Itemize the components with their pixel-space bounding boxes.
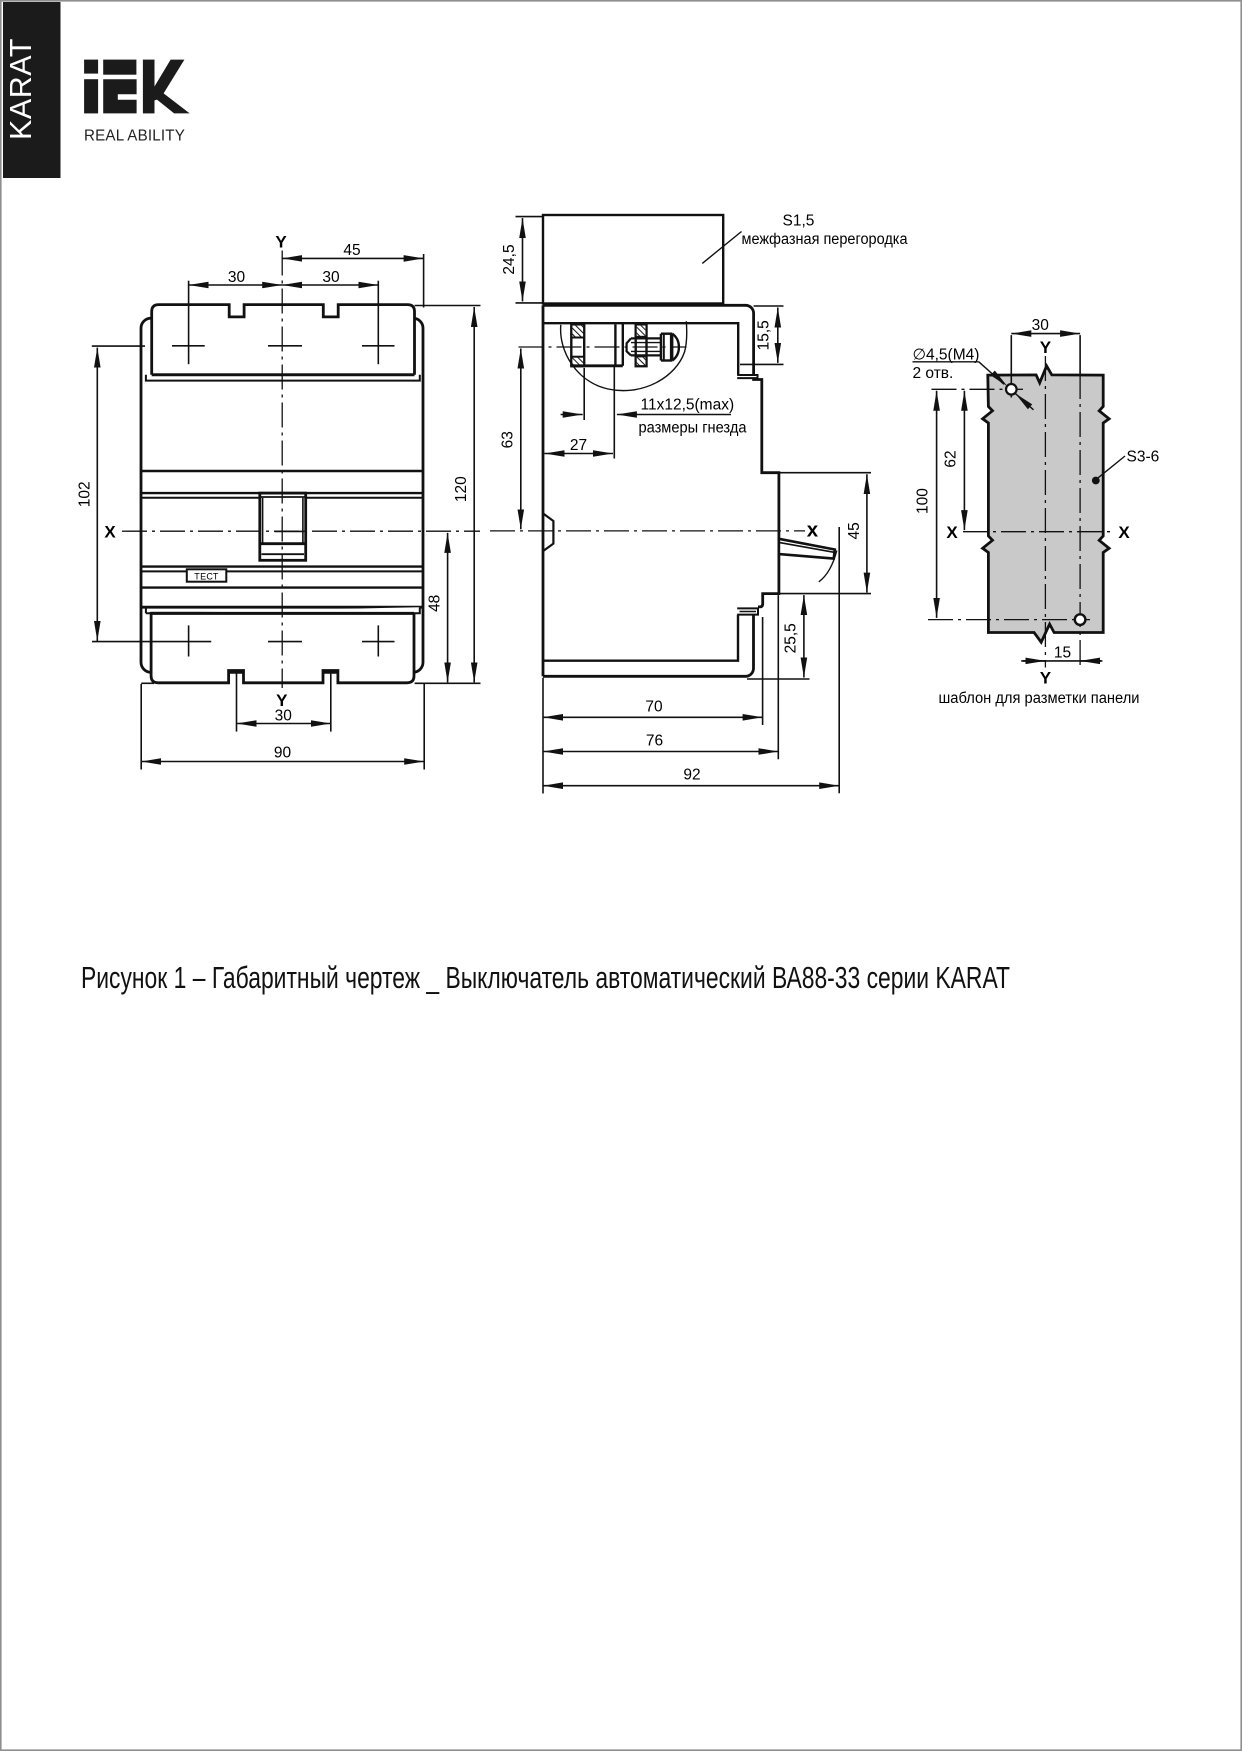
svg-text:48: 48 [426, 595, 443, 612]
svg-text:92: 92 [683, 767, 700, 784]
svg-text:X: X [104, 523, 116, 542]
svg-text:Y: Y [1040, 669, 1052, 688]
svg-text:30: 30 [275, 707, 293, 724]
svg-text:X: X [946, 523, 958, 542]
svg-text:90: 90 [274, 745, 292, 762]
svg-text:25,5: 25,5 [782, 623, 799, 653]
svg-text:Y: Y [1040, 338, 1052, 357]
svg-text:15: 15 [1054, 645, 1071, 662]
svg-text:S1,5: S1,5 [783, 213, 815, 230]
svg-text:102: 102 [77, 481, 94, 507]
svg-text:15,5: 15,5 [755, 320, 772, 350]
svg-text:межфазная перегородка: межфазная перегородка [742, 231, 908, 248]
svg-text:ТЕСТ: ТЕСТ [194, 571, 219, 581]
svg-text:63: 63 [499, 431, 516, 448]
svg-text:шаблон для разметки панели: шаблон для разметки панели [939, 690, 1140, 707]
svg-text:∅4,5(M4): ∅4,5(M4) [913, 347, 980, 364]
svg-text:120: 120 [453, 476, 470, 502]
svg-text:30: 30 [1032, 317, 1050, 334]
svg-text:KARAT: KARAT [4, 38, 38, 140]
svg-text:X: X [1118, 523, 1130, 542]
svg-text:размеры гнезда: размеры гнезда [639, 420, 747, 437]
svg-text:45: 45 [846, 522, 863, 539]
svg-text:45: 45 [343, 242, 360, 259]
svg-text:30: 30 [228, 269, 246, 286]
svg-text:24,5: 24,5 [501, 244, 518, 274]
svg-text:30: 30 [322, 269, 340, 286]
svg-text:11х12,5(max): 11х12,5(max) [641, 397, 735, 414]
svg-text:REAL ABILITY: REAL ABILITY [84, 128, 185, 145]
svg-text:70: 70 [645, 698, 663, 715]
svg-text:Рисунок 1 – Габаритный чертеж: Рисунок 1 – Габаритный чертеж _ Выключат… [81, 961, 1010, 995]
svg-text:x: x [807, 519, 819, 542]
svg-text:62: 62 [943, 450, 960, 467]
svg-text:S3-6: S3-6 [1127, 449, 1160, 466]
svg-text:Y: Y [275, 232, 287, 251]
svg-text:27: 27 [570, 437, 587, 454]
svg-text:100: 100 [915, 488, 932, 514]
svg-text:76: 76 [646, 732, 663, 749]
svg-text:2 отв.: 2 отв. [913, 365, 954, 382]
